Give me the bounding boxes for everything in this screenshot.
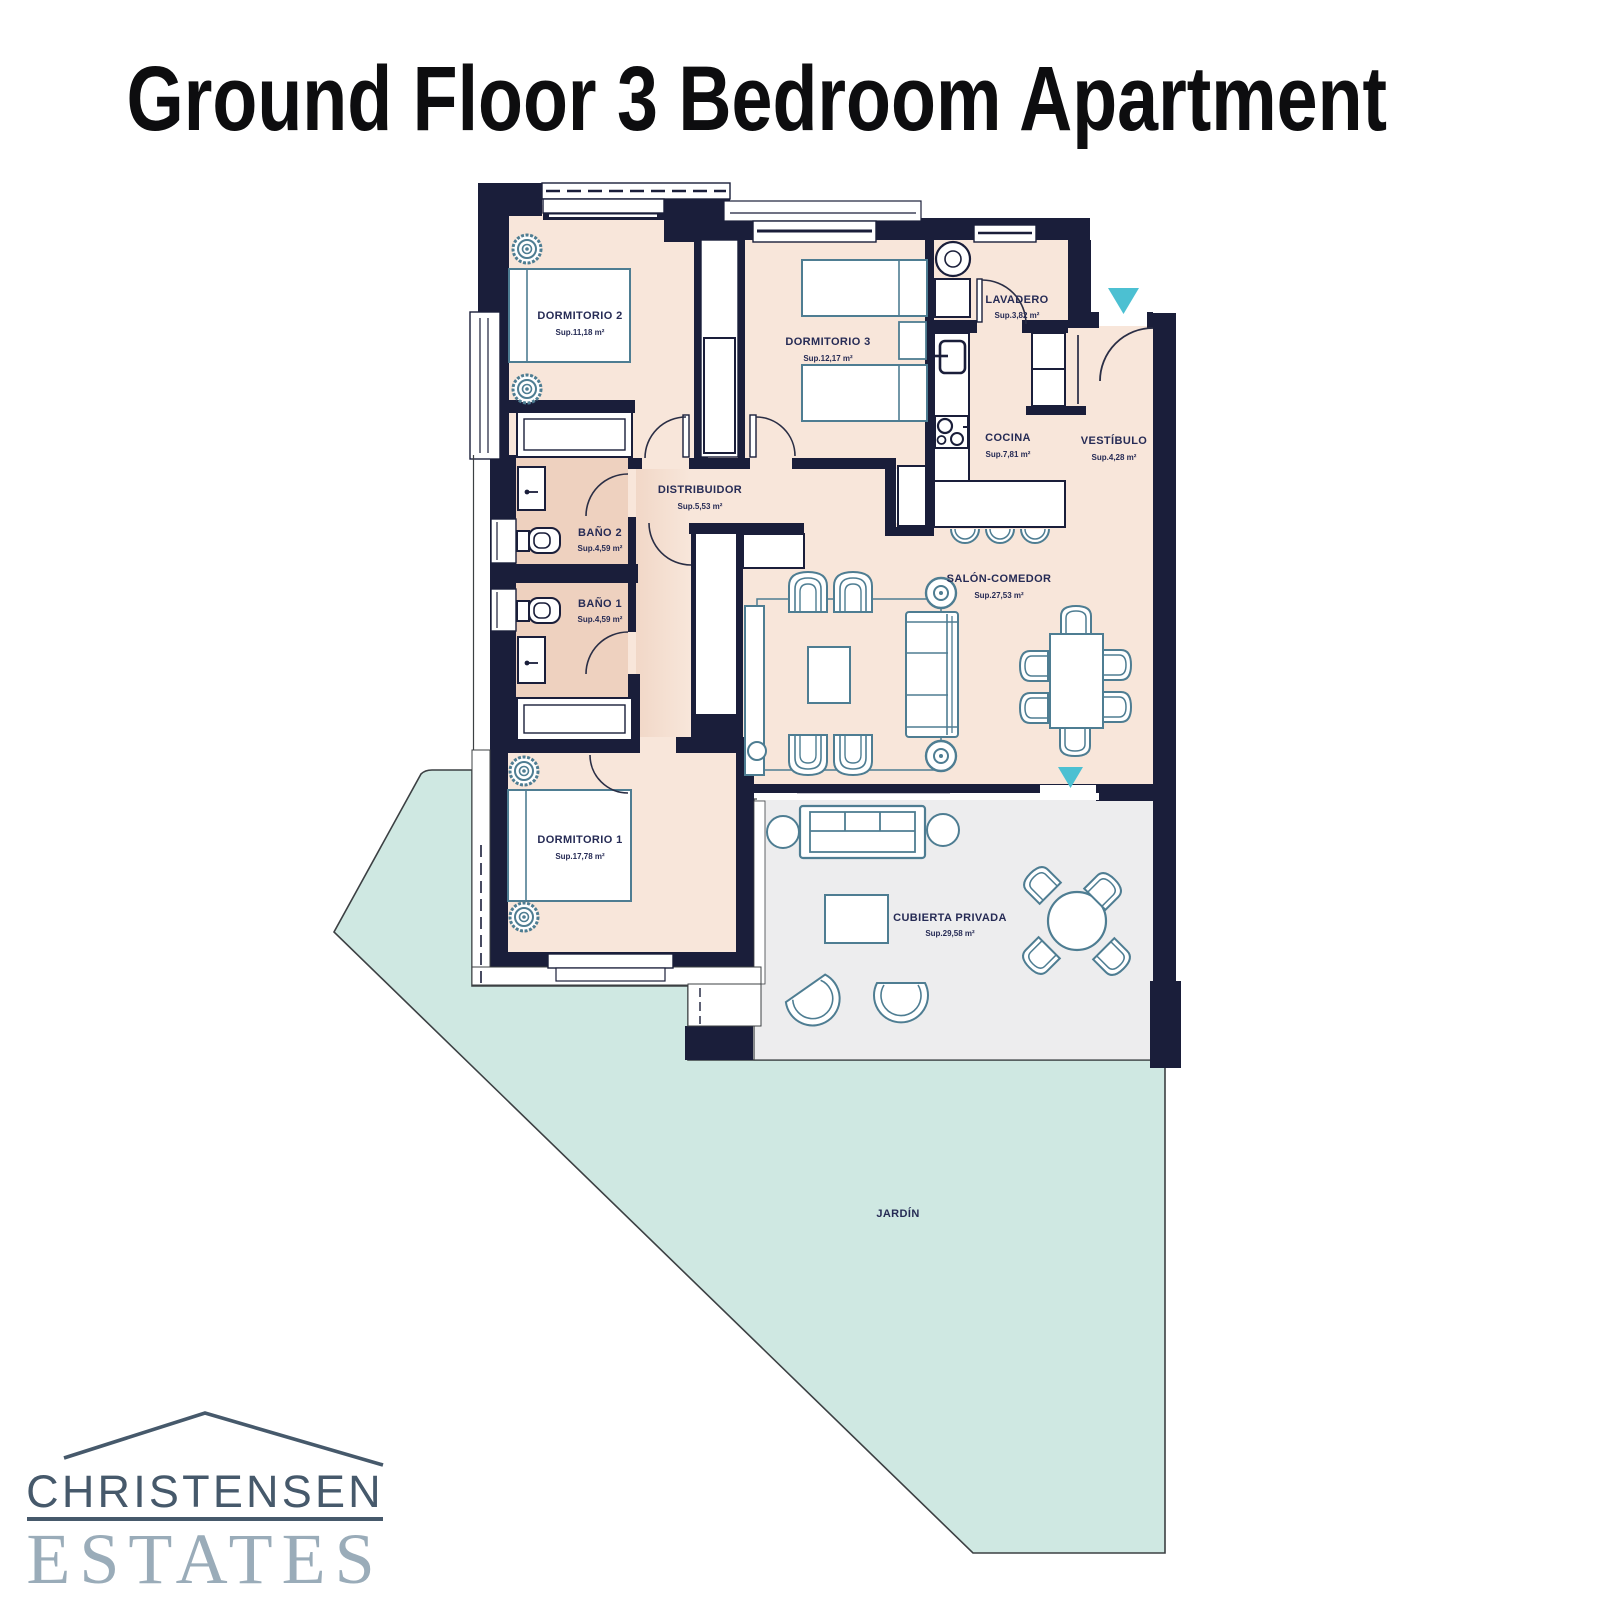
svg-text:JARDÍN: JARDÍN (876, 1207, 919, 1220)
svg-text:DORMITORIO 2: DORMITORIO 2 (537, 310, 622, 322)
svg-text:Sup.4,28 m²: Sup.4,28 m² (1092, 453, 1137, 462)
svg-text:DORMITORIO 1: DORMITORIO 1 (537, 834, 622, 846)
svg-text:Sup.29,58 m²: Sup.29,58 m² (925, 929, 975, 938)
svg-text:Sup.27,53 m²: Sup.27,53 m² (974, 591, 1024, 600)
svg-text:Ground Floor 3 Bedroom Apartme: Ground Floor 3 Bedroom Apartment (127, 47, 1388, 150)
svg-text:DORMITORIO 3: DORMITORIO 3 (785, 336, 870, 348)
svg-text:Sup.4,59 m²: Sup.4,59 m² (578, 544, 623, 553)
svg-text:COCINA: COCINA (985, 432, 1031, 444)
svg-text:SALÓN-COMEDOR: SALÓN-COMEDOR (947, 572, 1052, 585)
svg-text:DISTRIBUIDOR: DISTRIBUIDOR (658, 484, 742, 496)
svg-text:ESTATES: ESTATES (26, 1519, 383, 1599)
svg-text:CUBIERTA PRIVADA: CUBIERTA PRIVADA (893, 912, 1007, 924)
svg-text:Sup.5,53 m²: Sup.5,53 m² (678, 502, 723, 511)
svg-text:Sup.3,82 m²: Sup.3,82 m² (995, 311, 1040, 320)
svg-text:LAVADERO: LAVADERO (985, 294, 1048, 306)
svg-text:Sup.12,17 m²: Sup.12,17 m² (803, 354, 853, 363)
svg-text:Sup.11,18 m²: Sup.11,18 m² (556, 328, 605, 337)
svg-text:BAÑO 2: BAÑO 2 (578, 526, 622, 539)
svg-text:Sup.4,59 m²: Sup.4,59 m² (578, 615, 623, 624)
svg-text:Sup.17,78 m²: Sup.17,78 m² (555, 852, 605, 861)
svg-text:VESTÍBULO: VESTÍBULO (1081, 434, 1148, 447)
svg-text:CHRISTENSEN: CHRISTENSEN (26, 1466, 384, 1517)
svg-text:Sup.7,81 m²: Sup.7,81 m² (986, 450, 1031, 459)
svg-text:BAÑO 1: BAÑO 1 (578, 597, 622, 610)
